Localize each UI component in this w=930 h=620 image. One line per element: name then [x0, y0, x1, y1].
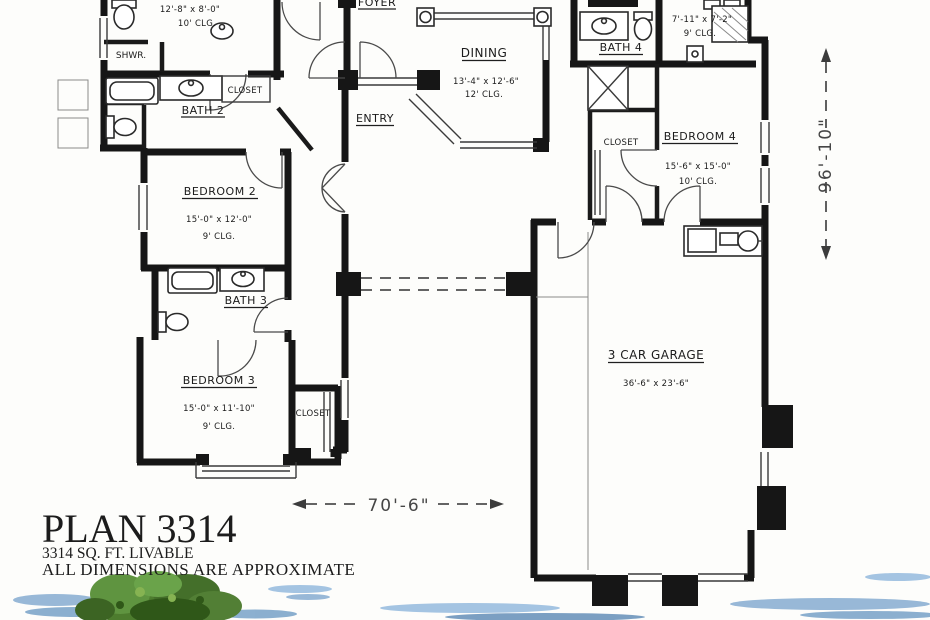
- utility-size: 7'-11" x 7'-2": [672, 15, 732, 25]
- bedroom3-label: BEDROOM 3: [183, 374, 255, 387]
- dining-label: DINING: [461, 46, 508, 60]
- toilet-icon: [112, 0, 136, 29]
- bath2-closet-label: CLOSET: [228, 86, 263, 96]
- depth-dimension: 96'-10": [816, 48, 836, 260]
- master-bath-size: 12'-8" x 8'-0": [160, 5, 220, 15]
- bathtub-icon: [106, 78, 158, 104]
- bedroom2-size: 15'-0" x 12'-0": [186, 215, 252, 225]
- bedroom3-ceiling: 9' CLG.: [203, 422, 236, 432]
- shower-label: SHWR.: [116, 51, 146, 61]
- dining-ceiling: 12' CLG.: [465, 90, 503, 100]
- bath2-label: BATH 2: [182, 104, 225, 117]
- bedroom4-ceiling: 10' CLG.: [679, 177, 717, 187]
- toilet-icon: [158, 312, 188, 332]
- vanity-sink-icon: [220, 268, 264, 291]
- foyer-label: FOYER: [358, 0, 396, 9]
- bath3-label: BATH 3: [225, 294, 268, 307]
- vanity-sink-icon: [160, 76, 222, 100]
- linen-fixture: [687, 46, 703, 62]
- width-dimension-label: 70'-6": [367, 496, 430, 516]
- bathtub-icon: [168, 268, 217, 293]
- depth-dimension-label: 96'-10": [816, 117, 836, 193]
- bath4-label: BATH 4: [600, 41, 643, 54]
- column-icon: [534, 8, 551, 26]
- utility-ceiling: 9' CLG.: [684, 29, 717, 39]
- bedroom3-closet-label: CLOSET: [296, 409, 331, 419]
- width-dimension: 70'-6": [292, 496, 504, 516]
- bedroom2-ceiling: 9' CLG.: [203, 232, 236, 242]
- garage-label: 3 CAR GARAGE: [608, 348, 704, 362]
- bedroom3-size: 15'-0" x 11'-10": [183, 404, 255, 414]
- bedroom4-size: 15'-6" x 15'-0": [665, 162, 731, 172]
- archway-dashed: [361, 278, 506, 290]
- plan-footer: PLAN 3314 3314 SQ. FT. LIVABLE ALL DIMEN…: [42, 506, 355, 579]
- vanity-sink-icon: [580, 12, 628, 40]
- shower-stall-icon: [588, 66, 628, 110]
- exterior-pads: [58, 80, 88, 148]
- garage-size: 36'-6" x 23'-6": [623, 379, 689, 389]
- floor-plan-page: 70'-6" 96'-10" 12'-8" x 8'-0" 10' CLG. S…: [0, 0, 930, 620]
- plan-disclaimer: ALL DIMENSIONS ARE APPROXIMATE: [42, 560, 355, 579]
- column-icon: [417, 8, 434, 26]
- dining-size: 13'-4" x 12'-6": [453, 77, 519, 87]
- toilet-icon: [634, 12, 652, 40]
- entry-label: ENTRY: [356, 112, 394, 125]
- bedroom2-label: BEDROOM 2: [184, 185, 256, 198]
- toilet-icon: [106, 116, 136, 138]
- floor-plan-drawing: 70'-6" 96'-10" 12'-8" x 8'-0" 10' CLG. S…: [0, 0, 930, 620]
- master-bath-ceiling: 10' CLG.: [178, 19, 216, 29]
- door-swings: [210, 2, 700, 376]
- bedroom4-closet-label: CLOSET: [604, 138, 639, 148]
- bedroom4-label: BEDROOM 4: [664, 130, 736, 143]
